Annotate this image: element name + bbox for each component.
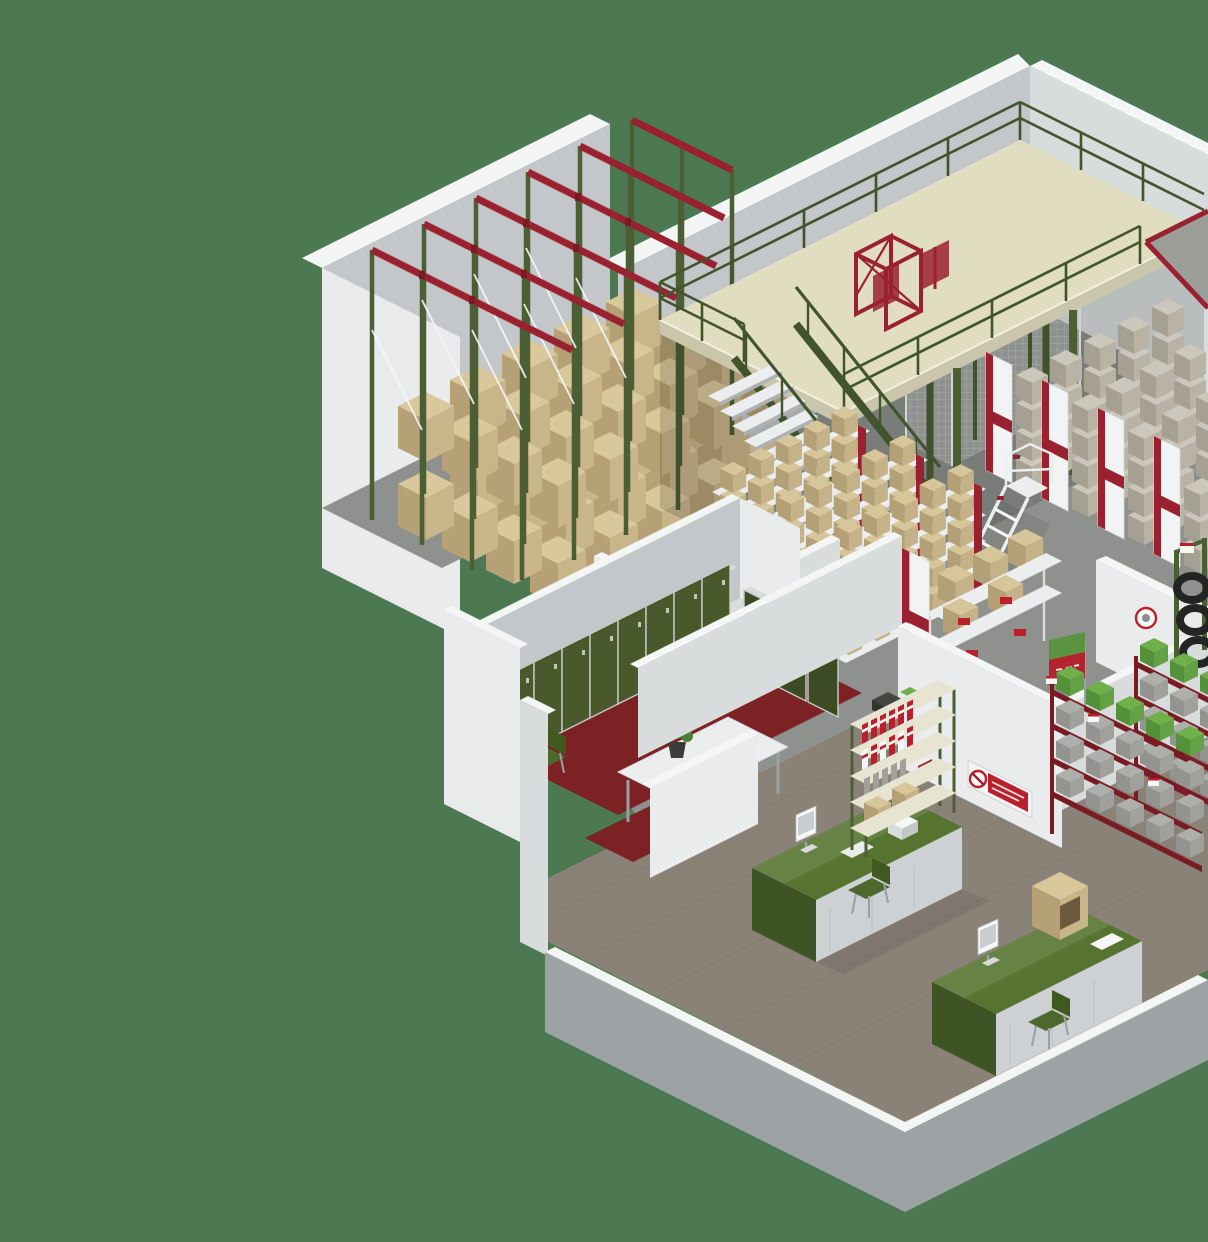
warehouse-isometric-render	[0, 0, 1208, 1242]
desk2-carton-dispenser	[1032, 872, 1088, 940]
round-prohibition-sign	[1136, 608, 1156, 628]
warehouse-scene	[0, 0, 1208, 1242]
